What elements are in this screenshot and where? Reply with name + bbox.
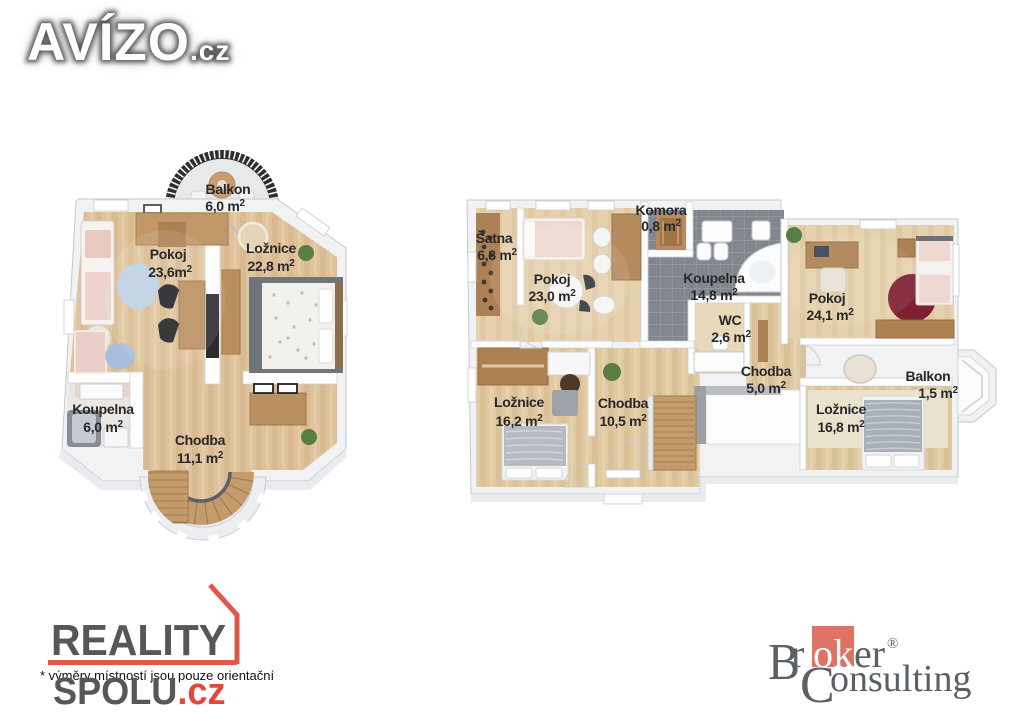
svg-text:Balkon: Balkon: [206, 181, 251, 197]
svg-text:22,8 m2: 22,8 m2: [247, 258, 295, 274]
svg-text:14,8 m2: 14,8 m2: [690, 287, 738, 303]
svg-text:6,0 m2: 6,0 m2: [205, 198, 245, 214]
svg-text:10,5 m2: 10,5 m2: [599, 413, 647, 429]
svg-text:Koupelna: Koupelna: [683, 270, 745, 286]
svg-text:Chodba: Chodba: [598, 395, 649, 411]
svg-text:11,1 m2: 11,1 m2: [177, 450, 224, 466]
svg-text:6,8 m2: 6,8 m2: [477, 247, 517, 263]
svg-text:6,0 m2: 6,0 m2: [83, 419, 123, 435]
svg-text:Chodba: Chodba: [175, 432, 226, 448]
svg-text:24,1 m2: 24,1 m2: [806, 307, 854, 323]
svg-text:1,5 m2: 1,5 m2: [918, 385, 958, 401]
svg-text:WC: WC: [719, 312, 742, 328]
svg-text:Pokoj: Pokoj: [150, 246, 187, 262]
svg-text:16,2 m2: 16,2 m2: [495, 413, 543, 429]
svg-text:0,8 m2: 0,8 m2: [641, 218, 681, 234]
svg-text:Chodba: Chodba: [741, 363, 792, 379]
svg-text:Balkon: Balkon: [906, 368, 951, 384]
svg-text:Koupelna: Koupelna: [72, 401, 134, 417]
svg-text:Ložnice: Ložnice: [816, 401, 867, 417]
svg-text:Pokoj: Pokoj: [809, 290, 846, 306]
svg-text:5,0 m2: 5,0 m2: [746, 380, 786, 396]
svg-text:Pokoj: Pokoj: [534, 271, 571, 287]
svg-text:2,6 m2: 2,6 m2: [711, 329, 751, 345]
svg-text:16,8 m2: 16,8 m2: [817, 419, 865, 435]
svg-text:23,0 m2: 23,0 m2: [528, 288, 576, 304]
svg-text:Šatna: Šatna: [476, 229, 513, 246]
svg-text:23,6m2: 23,6m2: [148, 264, 192, 280]
svg-text:Komora: Komora: [635, 202, 687, 218]
svg-text:Ložnice: Ložnice: [246, 240, 297, 256]
svg-text:Ložnice: Ložnice: [494, 394, 545, 410]
